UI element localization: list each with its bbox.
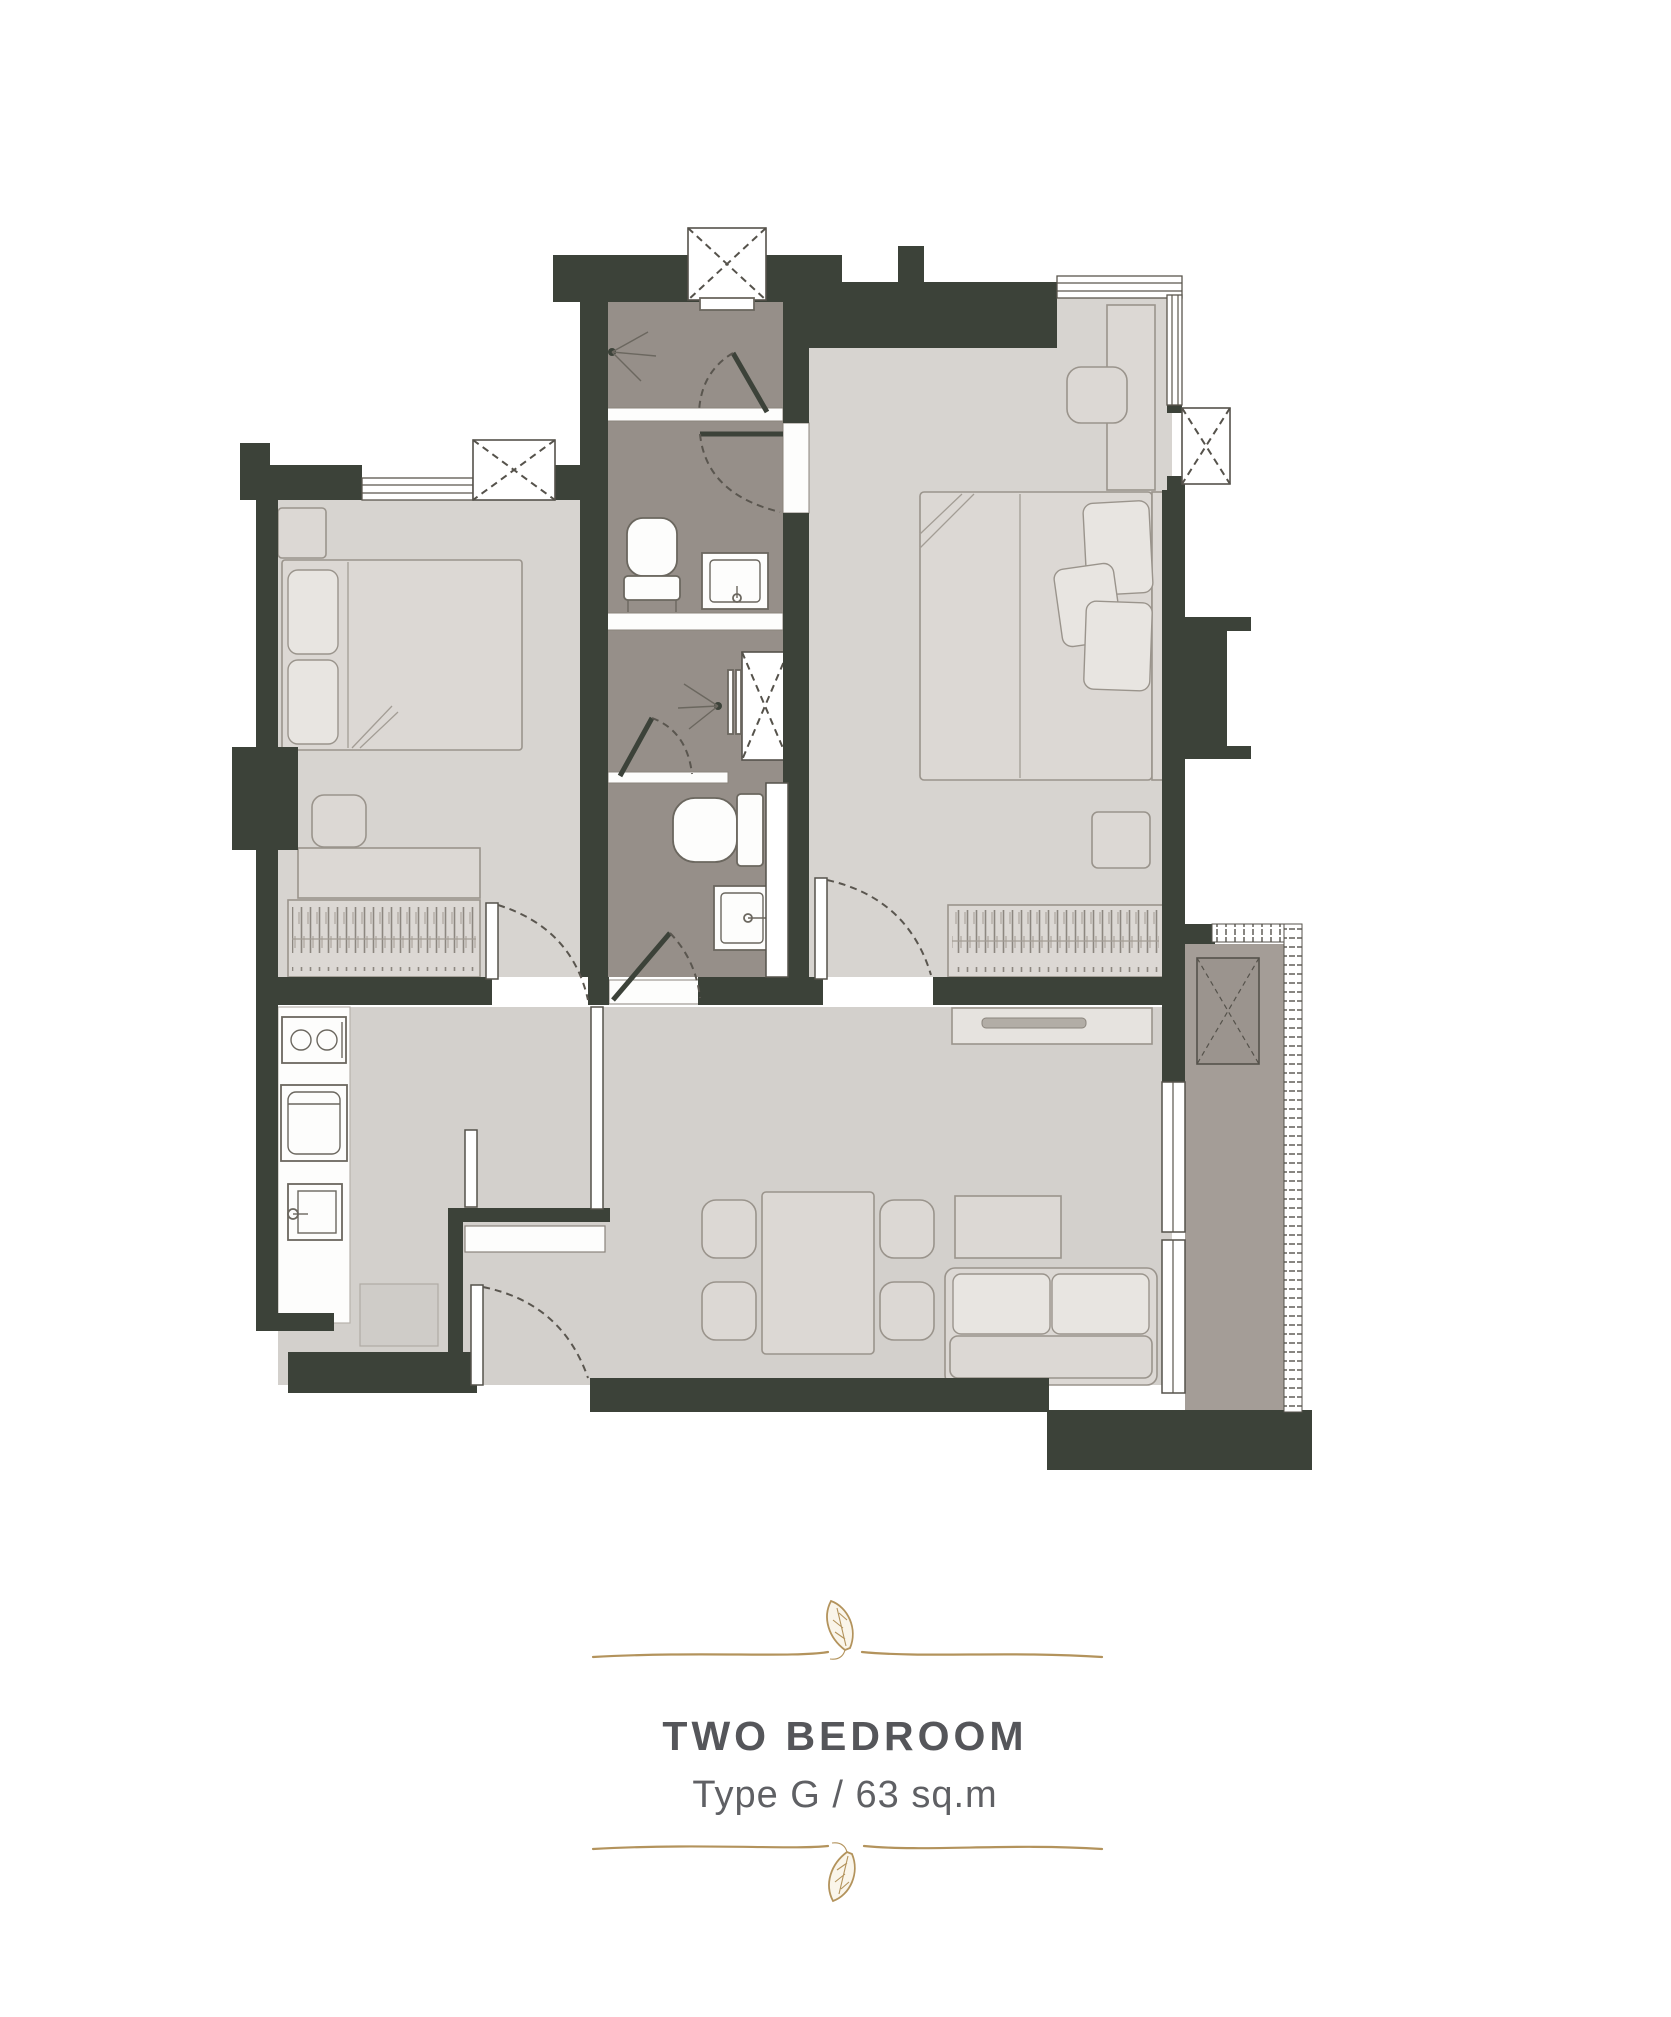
wall-segment: [256, 1313, 334, 1331]
kitchen-sink: [288, 1184, 342, 1240]
shaft2-louver-2: [736, 670, 741, 734]
leaf-stem: [830, 1650, 845, 1659]
wall-segment: [448, 1208, 463, 1388]
master-window-top-frame: [1057, 276, 1182, 298]
bedroom2-door-leaf: [486, 903, 498, 979]
sofa-backrest: [950, 1336, 1152, 1378]
bedroom2-pillow-2: [288, 660, 338, 744]
bathroom1-shower-screen: [605, 408, 783, 421]
wall-segment: [448, 1208, 610, 1222]
kitchen-partition: [591, 1007, 603, 1209]
ornament-line-top-left: [593, 1652, 828, 1657]
kitchen-sliding-panel: [465, 1130, 477, 1207]
tv-set: [982, 1018, 1086, 1028]
appliance-body: [281, 1085, 347, 1161]
bathroom2-sink: [714, 886, 770, 950]
shaft-box-bedroom2: [473, 440, 555, 500]
bathroom2-toilet: [673, 794, 763, 866]
shaft2-louver-1: [728, 670, 733, 734]
master-wardrobe: [948, 905, 1163, 977]
wall-segment: [256, 465, 278, 747]
wall-segment: [256, 977, 492, 1005]
toilet2-tank: [737, 794, 763, 866]
shaft-louver: [700, 298, 754, 310]
shaft-box-master: [1182, 408, 1230, 484]
bedroom2-nightstand: [278, 508, 326, 558]
dining-table: [762, 1192, 874, 1354]
ornament-line-top-right: [862, 1652, 1102, 1657]
wall-segment: [580, 255, 608, 977]
bathroom1-sink: [702, 553, 768, 609]
coffee-table: [955, 1196, 1061, 1258]
shaft-box-top: [688, 228, 766, 310]
balcony-ac-unit: [1197, 958, 1259, 1064]
wall-segment: [256, 850, 278, 1315]
bathroom2-shower-screen: [608, 772, 728, 783]
entrance-mat: [360, 1284, 438, 1346]
floor-plan-page: TWO BEDROOM Type G / 63 sq.m: [0, 0, 1671, 2017]
bedroom2-window-frame: [362, 478, 473, 500]
bathroom1-toilet: [624, 518, 680, 612]
leaf-stem: [832, 1843, 847, 1852]
leaf-ornament-bottom-icon: [829, 1843, 855, 1901]
bedroom2-wardrobe: [288, 900, 480, 977]
tv-console: [952, 1008, 1152, 1044]
wall-segment: [1185, 924, 1215, 944]
toilet1-bowl: [627, 518, 677, 576]
wall-segment: [590, 1378, 1049, 1412]
entry-console: [465, 1226, 605, 1252]
wall-segment: [588, 977, 609, 1005]
entrance-door-leaf: [471, 1285, 483, 1385]
wall-segment: [783, 282, 1057, 348]
dining-chair-4: [880, 1282, 934, 1340]
bedroom2-pillow-1: [288, 570, 338, 654]
kitchen-stove: [282, 1017, 346, 1063]
plan-title: TWO BEDROOM: [662, 1713, 1027, 1759]
ornament-line-bottom-right: [864, 1846, 1102, 1849]
wall-segment: [933, 977, 1185, 1005]
wall-segment: [232, 747, 298, 850]
wall-segment: [1162, 490, 1185, 1082]
master-nightstand: [1092, 812, 1150, 868]
ornament-line-bottom-left: [593, 1846, 828, 1849]
toilet2-bowl: [673, 798, 737, 862]
bathroom1-doorway: [783, 423, 809, 513]
wall-fin: [1185, 617, 1251, 631]
master-bed: [920, 492, 1168, 780]
wall-segment: [1047, 1410, 1312, 1470]
bathroom1-vanity-counter: [605, 613, 783, 630]
bedroom2-desk: [298, 848, 480, 898]
bedroom2-stool: [312, 795, 366, 847]
wall-segment: [898, 246, 924, 282]
bedroom2-window: [362, 478, 473, 500]
dining-chair-3: [880, 1200, 934, 1258]
dining-chair-1: [702, 1200, 756, 1258]
bathroom2-door-leaf-parked: [766, 783, 788, 977]
wall-segment: [1185, 631, 1227, 746]
master-chair: [1067, 367, 1127, 423]
dining-chair-2: [702, 1282, 756, 1340]
toilet1-tank: [624, 576, 680, 600]
sofa-cushion-2: [1052, 1274, 1149, 1334]
master-window-top: [1057, 276, 1182, 298]
sofa-cushion-1: [953, 1274, 1050, 1334]
kitchen-appliance: [281, 1085, 347, 1161]
master-window-side-frame: [1167, 295, 1182, 405]
balcony-railing-right-hatch: [1284, 924, 1302, 1412]
plan-subtitle: Type G / 63 sq.m: [692, 1774, 997, 1816]
leaf-ornament-top-icon: [827, 1601, 853, 1659]
sofa: [945, 1268, 1157, 1385]
master-window-side: [1167, 295, 1182, 405]
master-pillow-2: [1083, 601, 1152, 691]
wall-segment: [698, 977, 823, 1005]
bedroom2-bed: [282, 560, 522, 750]
floor-plan-canvas: TWO BEDROOM Type G / 63 sq.m: [0, 0, 1671, 2017]
master-door-leaf: [815, 878, 827, 979]
wall-fin: [1185, 746, 1251, 759]
